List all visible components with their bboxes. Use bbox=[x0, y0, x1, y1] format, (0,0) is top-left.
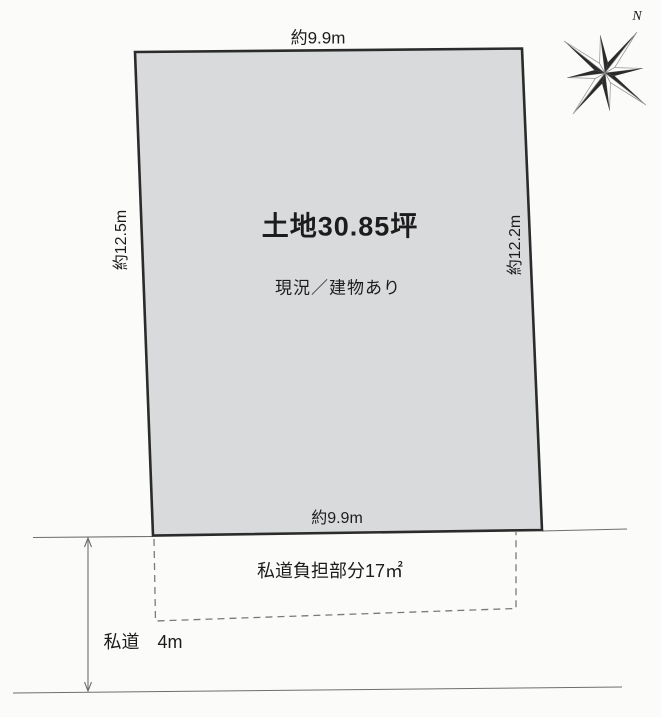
parcel-area-label: 土地30.85坪 bbox=[262, 214, 419, 241]
top-width-label: 約9.9m bbox=[291, 30, 346, 47]
left-width-label: 約12.5m bbox=[114, 210, 130, 270]
right-width-label: 約12.2m bbox=[508, 215, 524, 275]
road-upper-edge-left bbox=[33, 537, 153, 538]
land-plot-diagram: N 約9.9m 約12.5m 約12.2m 土地30.85坪 現況／建物あり 約… bbox=[0, 0, 661, 717]
north-label: N bbox=[632, 10, 641, 24]
road-lower-edge bbox=[13, 687, 622, 693]
road-upper-edge-right bbox=[542, 529, 627, 531]
private-road-lines bbox=[13, 529, 627, 693]
road-width-arrow bbox=[85, 538, 92, 691]
bottom-width-label: 約9.9m bbox=[311, 511, 363, 527]
compass-rose-icon bbox=[564, 32, 646, 114]
road-burden-label: 私道負担部分17㎡ bbox=[257, 562, 403, 580]
plan-drawing bbox=[0, 0, 661, 717]
parcel-status-label: 現況／建物あり bbox=[275, 280, 401, 297]
road-width-label: 私道 4m bbox=[103, 633, 182, 651]
